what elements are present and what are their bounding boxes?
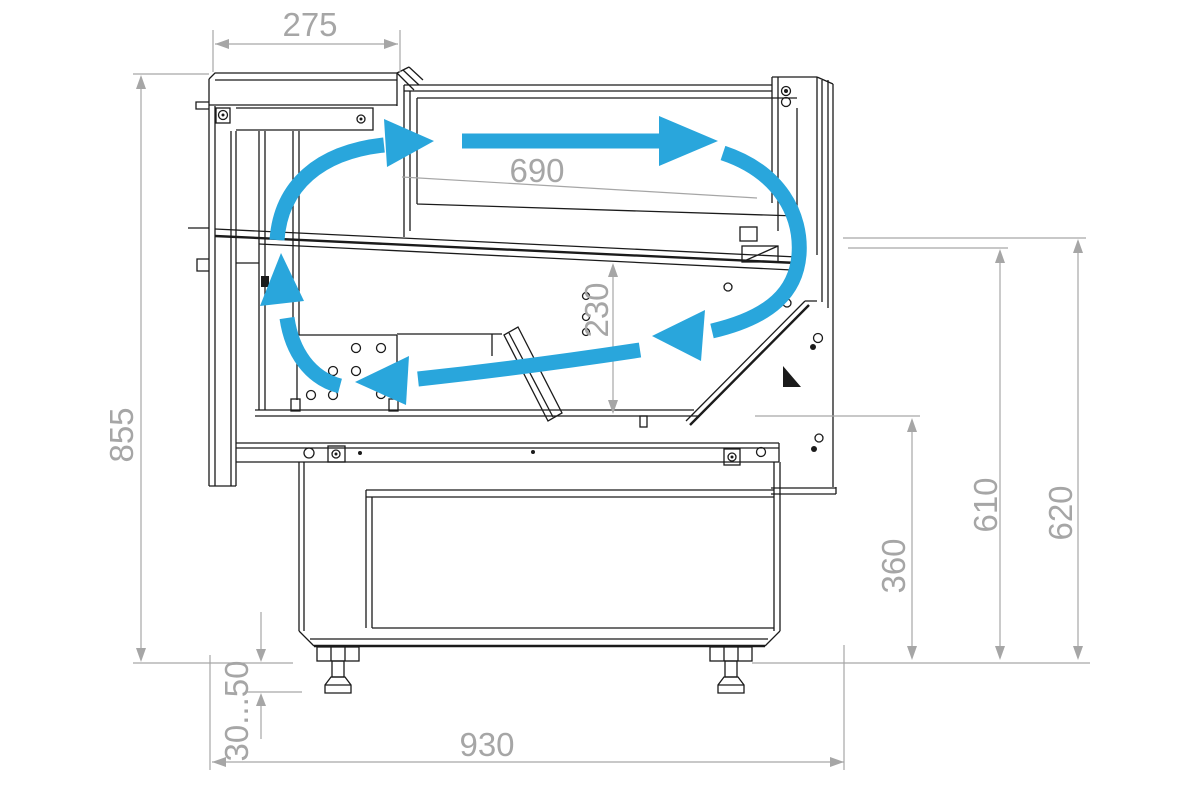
dimensions: 275 690 230 855 30...50 [103,6,1090,770]
dim-canopy-depth-label: 275 [282,6,337,43]
dimension-canopy-depth: 275 [213,6,400,72]
base-cabinet [299,462,780,646]
dim-foot-adjustment-label: 30...50 [218,661,255,762]
top-horizontal-arrow [462,116,718,166]
display-counter-section-drawing: 275 690 230 855 30...50 [0,0,1200,800]
front-knee-panel [686,299,836,494]
dim-overall-depth-label: 930 [459,726,514,763]
dimension-display-opening-width: 690 [402,152,757,198]
dim-overall-height-label: 855 [103,407,140,462]
dimension-top-edge-height: 620 [843,238,1086,660]
adjustable-foot-left [317,647,359,693]
well-return-arrow [355,350,640,405]
technical-drawing-canvas: 275 690 230 855 30...50 [0,0,1200,800]
duct-up-arrow [260,253,340,386]
dimension-overall-depth: 930 [210,645,844,770]
dimension-middle-level-height: 610 [848,248,1008,660]
dimension-foot-adjustment: 30...50 [218,612,302,761]
adjustable-foot-right [710,647,752,693]
dim-display-opening-width-label: 690 [509,152,564,189]
dim-well-floor-height-label: 360 [875,538,912,593]
dim-top-edge-height-label: 620 [1042,485,1079,540]
dim-middle-level-height-label: 610 [967,477,1004,532]
display-deck [215,229,797,336]
canopy [209,67,423,106]
base-rail [236,443,779,465]
dimension-well-depth: 230 [578,263,618,414]
dim-well-depth-label: 230 [578,282,615,337]
